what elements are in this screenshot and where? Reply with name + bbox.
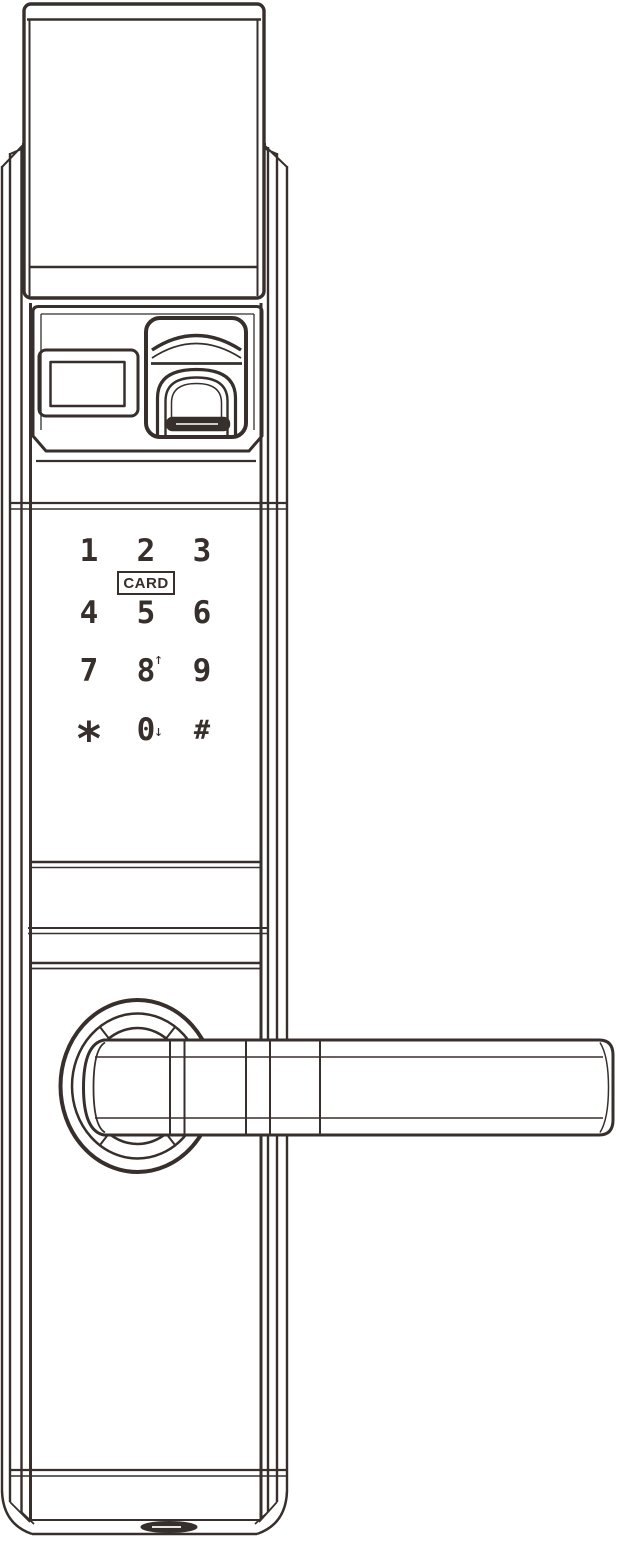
card-label: CARD	[123, 575, 168, 592]
key-star-label: *	[75, 716, 103, 762]
key-6[interactable]: 6	[180, 591, 224, 635]
down-arrow-icon: ↓	[154, 724, 163, 739]
key-9[interactable]: 9	[180, 649, 224, 693]
key-4[interactable]: 4	[67, 591, 111, 635]
key-2-label: 2	[137, 536, 156, 567]
key-3[interactable]: 3	[180, 529, 224, 573]
key-5[interactable]: 5	[124, 591, 168, 635]
display-screen	[51, 362, 125, 406]
key-2[interactable]: 2	[124, 529, 168, 573]
fingerprint-reader[interactable]	[146, 318, 246, 437]
key-0[interactable]: 0 ↓	[124, 708, 168, 752]
key-4-label: 4	[80, 598, 99, 629]
key-7-label: 7	[80, 656, 99, 687]
key-6-label: 6	[193, 598, 212, 629]
up-arrow-icon: ↑	[154, 652, 163, 667]
key-9-label: 9	[193, 656, 212, 687]
fingerprint-top-arc-inner	[152, 344, 241, 359]
bottom-port	[141, 1522, 197, 1533]
key-3-label: 3	[193, 536, 212, 567]
lock-line-art	[0, 0, 617, 1541]
handle-lever[interactable]	[84, 1040, 614, 1135]
handle[interactable]	[61, 1000, 614, 1172]
key-5-label: 5	[137, 598, 156, 629]
display-window	[39, 350, 138, 416]
upper-panel	[33, 307, 262, 462]
key-hash[interactable]: #	[180, 708, 224, 752]
key-1-label: 1	[80, 536, 99, 567]
body-right-edges	[268, 147, 287, 1512]
key-7[interactable]: 7	[67, 649, 111, 693]
key-8-label: 8	[137, 656, 156, 687]
key-8[interactable]: 8 ↑	[124, 649, 168, 693]
body-left-edges	[2, 147, 22, 1512]
key-star[interactable]: *	[67, 708, 111, 752]
key-hash-label: #	[194, 717, 210, 744]
door-lock-illustration: 1 2 3 CARD 4 5 6 7 8 ↑ 9 *	[0, 0, 617, 1541]
body-bottom-left-corner	[2, 1491, 32, 1534]
key-0-label: 0	[137, 715, 156, 746]
top-cover-outline	[24, 4, 264, 298]
top-cover	[24, 4, 264, 298]
key-1[interactable]: 1	[67, 529, 111, 573]
